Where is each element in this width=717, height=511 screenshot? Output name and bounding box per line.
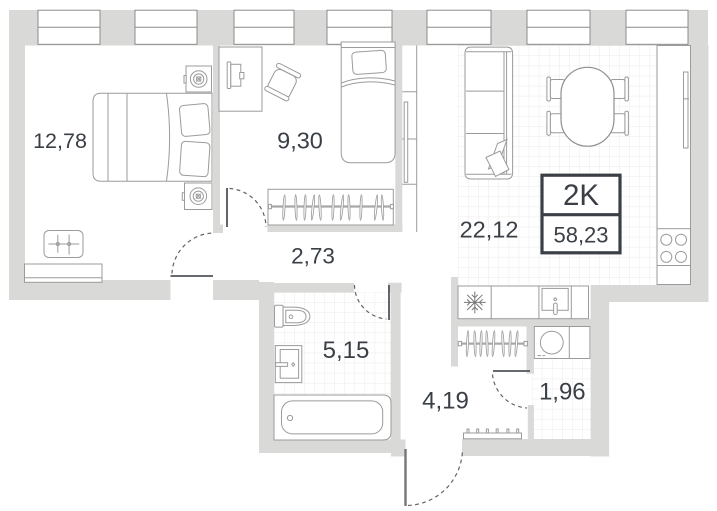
svg-text:5,15: 5,15 bbox=[323, 337, 370, 364]
svg-text:22,12: 22,12 bbox=[460, 217, 519, 243]
svg-text:4,19: 4,19 bbox=[422, 388, 469, 415]
svg-text:12,78: 12,78 bbox=[33, 129, 87, 153]
svg-text:9,30: 9,30 bbox=[277, 127, 323, 153]
svg-text:58,23: 58,23 bbox=[553, 223, 608, 248]
svg-text:2,73: 2,73 bbox=[291, 244, 335, 269]
svg-text:1,96: 1,96 bbox=[539, 379, 586, 406]
svg-text:2K: 2K bbox=[563, 179, 599, 212]
